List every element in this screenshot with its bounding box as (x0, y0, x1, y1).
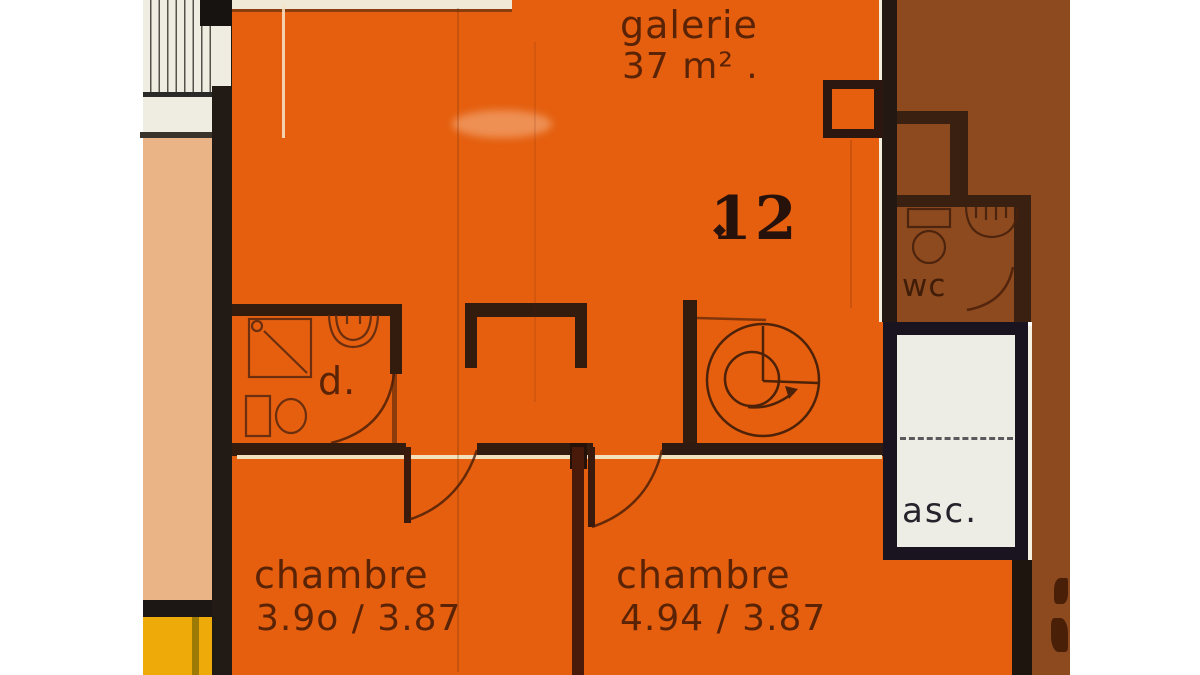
right-party-wall (882, 0, 897, 322)
scan-scratch (282, 4, 285, 138)
room-label-chambre-right: chambre (616, 556, 791, 596)
cutoff-text-fragment (1051, 618, 1068, 652)
wall-corner-block (200, 0, 232, 26)
adjacent-unit-yellow (143, 617, 213, 675)
left-party-wall (212, 0, 232, 675)
door-leaf (404, 447, 411, 523)
wc-wall-right (1014, 195, 1031, 322)
closet-wall-top (465, 303, 587, 317)
floor-plan: galerie 37 m² . 12 wc asc. d. chambre 3.… (0, 0, 1200, 675)
room-dimensions-chambre-left: 3.9o / 3.87 (256, 600, 461, 638)
adjacent-unit-peach (143, 138, 213, 600)
room-label-shower-room: d. (318, 362, 356, 402)
fold-line (457, 8, 459, 672)
door-leaf (392, 374, 397, 443)
wc-wall-step (950, 111, 968, 201)
window-strip-edge (232, 9, 512, 12)
scan-smudge (452, 110, 552, 138)
door-leaf (588, 447, 595, 527)
wall-opening (212, 26, 231, 86)
room-dimensions-chambre-right: 4.94 / 3.87 (620, 600, 826, 638)
bottom-right-wall (1012, 547, 1032, 675)
apartment-floor-orange-extension (883, 560, 1013, 675)
duct-shaft (823, 80, 883, 138)
bathroom-wall-top (232, 304, 402, 316)
wc-wall-middle (897, 195, 1031, 207)
stair-well-wall (683, 300, 697, 455)
room-area-galerie: 37 m² . (622, 48, 759, 86)
elevator-dashed-line (900, 437, 1013, 440)
cutoff-text-fragment (1054, 578, 1068, 604)
elevator-highlight-line (1028, 326, 1032, 560)
room-label-chambre-left: chambre (254, 556, 429, 596)
closet-wall-left (465, 303, 477, 368)
chambre-divider-wall (572, 447, 584, 675)
unit-number: 12 (710, 188, 800, 251)
room-label-wc: wc (902, 270, 946, 303)
wall-highlight-line (237, 455, 882, 459)
room-label-galerie: galerie (620, 6, 758, 46)
fold-line (850, 140, 852, 308)
fold-line (534, 42, 536, 402)
yellow-unit-partition (192, 617, 199, 675)
bathroom-wall-right (390, 304, 402, 374)
window-strip (232, 0, 512, 9)
closet-wall-right (575, 303, 587, 368)
image-white-mask (1070, 0, 1200, 675)
room-label-elevator: asc. (902, 494, 978, 530)
